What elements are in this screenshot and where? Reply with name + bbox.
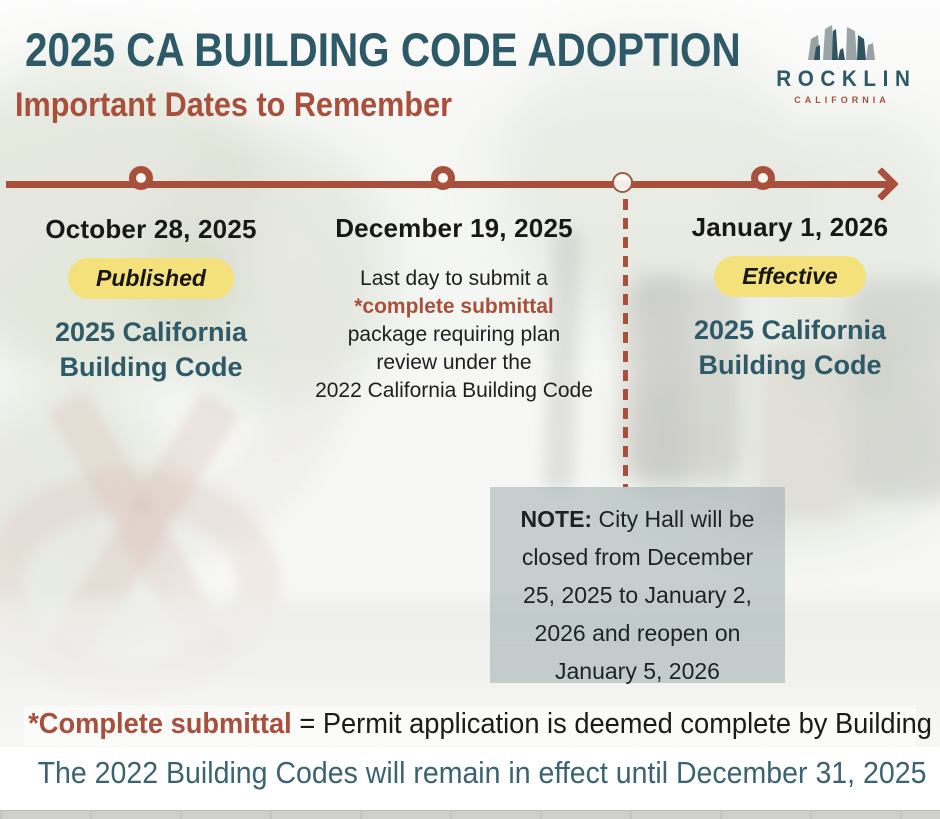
timeline-node-city-hall-closure (612, 172, 633, 193)
milestone-december-19: December 19, 2025 Last day to submit a *… (288, 213, 620, 405)
milestone-date: January 1, 2026 (650, 212, 930, 243)
description-line: 2022 California Building Code (288, 377, 620, 405)
page-title: 2025 CA BUILDING CODE ADOPTION (25, 22, 741, 77)
description-line: review under the (288, 349, 620, 377)
page-subtitle: Important Dates to Remember (15, 86, 452, 125)
infographic-page: 2025 CA BUILDING CODE ADOPTION Important… (0, 0, 940, 819)
note-line: City Hall will be (592, 506, 754, 532)
timeline-dashed-connector (623, 199, 628, 487)
milestone-january-1: January 1, 2026 Effective 2025 Californi… (650, 212, 930, 383)
note-label: NOTE: (521, 506, 593, 532)
milestone-date: October 28, 2025 (26, 214, 276, 245)
bottom-pavement-strip (0, 810, 940, 819)
description-highlight: *complete submittal (288, 293, 620, 321)
note-line: 2026 and reopen on (490, 614, 785, 652)
note-box: NOTE: City Hall will be closed from Dece… (490, 487, 785, 683)
milestone-program: 2025 California Building Code (26, 315, 276, 385)
timeline-node-january (751, 166, 775, 190)
description-line: Last day to submit a (288, 265, 620, 293)
milestone-date: December 19, 2025 (288, 213, 620, 244)
footnote-highlight: *Complete submittal (28, 708, 292, 740)
logo-tagline: CALIFORNIA (772, 95, 912, 105)
description-line: package requiring plan (288, 321, 620, 349)
footer-message: The 2022 Building Codes will remain in e… (38, 755, 903, 791)
note-line: 25, 2025 to January 2, (490, 576, 785, 614)
note-line: closed from December (490, 538, 785, 576)
timeline-node-october (129, 166, 153, 190)
rocklin-logo: ROCKLIN CALIFORNIA (772, 20, 912, 105)
milestone-october-28: October 28, 2025 Published 2025 Californ… (26, 214, 276, 385)
footnote: *Complete submittal = Permit application… (28, 708, 912, 741)
status-badge-published: Published (68, 258, 234, 299)
status-badge-effective: Effective (714, 256, 865, 297)
logo-name: ROCKLIN (776, 66, 908, 92)
footnote-text: = Permit application is deemed complete … (292, 708, 940, 740)
milestone-program: 2025 California Building Code (650, 313, 930, 383)
milestone-description: Last day to submit a *complete submittal… (288, 265, 620, 405)
note-line: January 5, 2026 (490, 652, 785, 690)
rocklin-rocks-icon (772, 20, 912, 62)
timeline-node-december (431, 166, 455, 190)
